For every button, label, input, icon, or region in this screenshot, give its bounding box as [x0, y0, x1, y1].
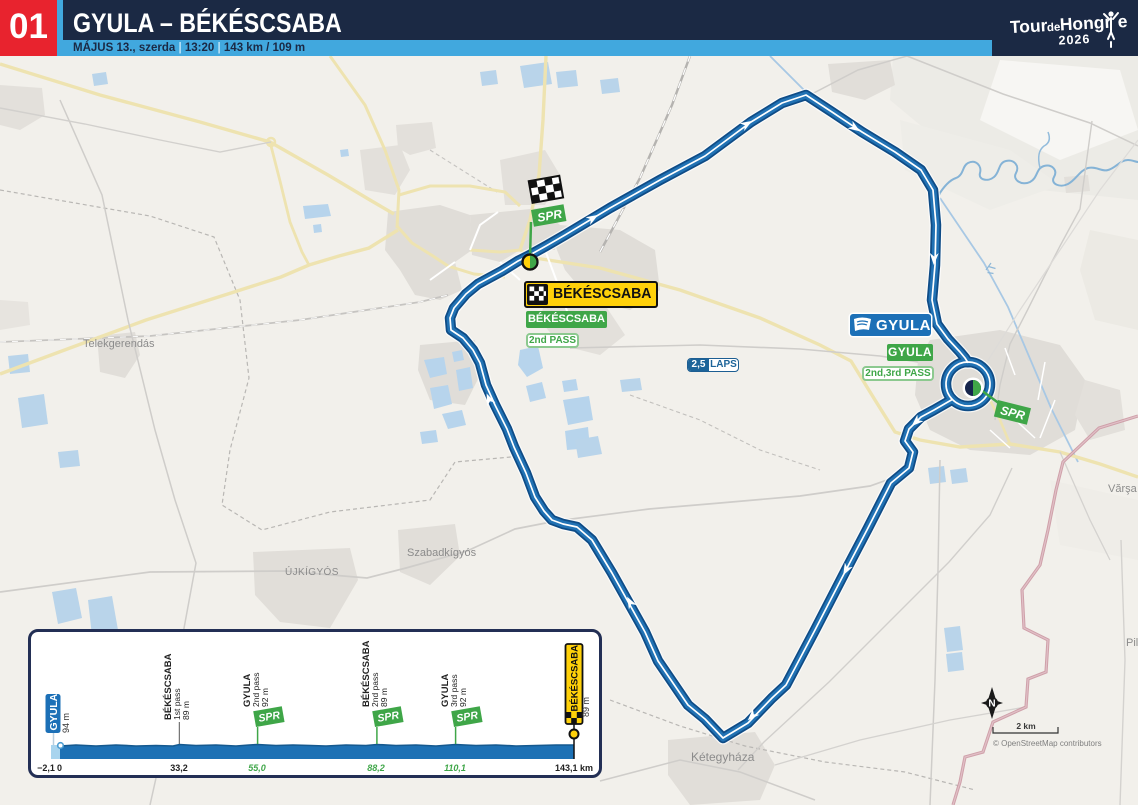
svg-text:110,1: 110,1 — [444, 763, 466, 773]
svg-text:BÉKÉSCSABA: BÉKÉSCSABA — [570, 645, 581, 712]
svg-text:89 m: 89 m — [181, 701, 191, 720]
svg-text:89 m: 89 m — [379, 688, 389, 707]
svg-text:de: de — [1047, 22, 1061, 35]
svg-text:−2,1: −2,1 — [37, 763, 55, 773]
svg-text:33,2: 33,2 — [170, 763, 188, 773]
svg-text:Kétegyháza: Kétegyháza — [691, 750, 755, 764]
svg-text:94 m: 94 m — [61, 713, 71, 733]
svg-text:GYULA: GYULA — [48, 693, 60, 730]
svg-text:N: N — [988, 699, 995, 710]
svg-text:55,0: 55,0 — [248, 763, 266, 773]
svg-text:Tour: Tour — [1010, 15, 1048, 37]
svg-text:Vărşa: Vărşa — [1108, 483, 1138, 495]
svg-text:92 m: 92 m — [458, 688, 468, 707]
svg-text:ÚJKÍGYÓS: ÚJKÍGYÓS — [285, 565, 339, 578]
svg-text:92 m: 92 m — [260, 688, 270, 707]
svg-text:143,1 km: 143,1 km — [555, 763, 593, 773]
svg-text:2 km: 2 km — [1016, 721, 1036, 731]
svg-text:© OpenStreetMap contributors: © OpenStreetMap contributors — [993, 739, 1102, 748]
svg-text:0: 0 — [57, 763, 62, 773]
svg-text:89 m: 89 m — [581, 697, 591, 717]
svg-text:88,2: 88,2 — [367, 763, 385, 773]
svg-text:Telekgerendás: Telekgerendás — [83, 338, 155, 350]
svg-text:Pil: Pil — [1126, 637, 1138, 649]
svg-text:Szabadkígyós: Szabadkígyós — [407, 547, 477, 559]
svg-text:2026: 2026 — [1058, 32, 1091, 48]
svg-text:e: e — [1117, 11, 1128, 31]
